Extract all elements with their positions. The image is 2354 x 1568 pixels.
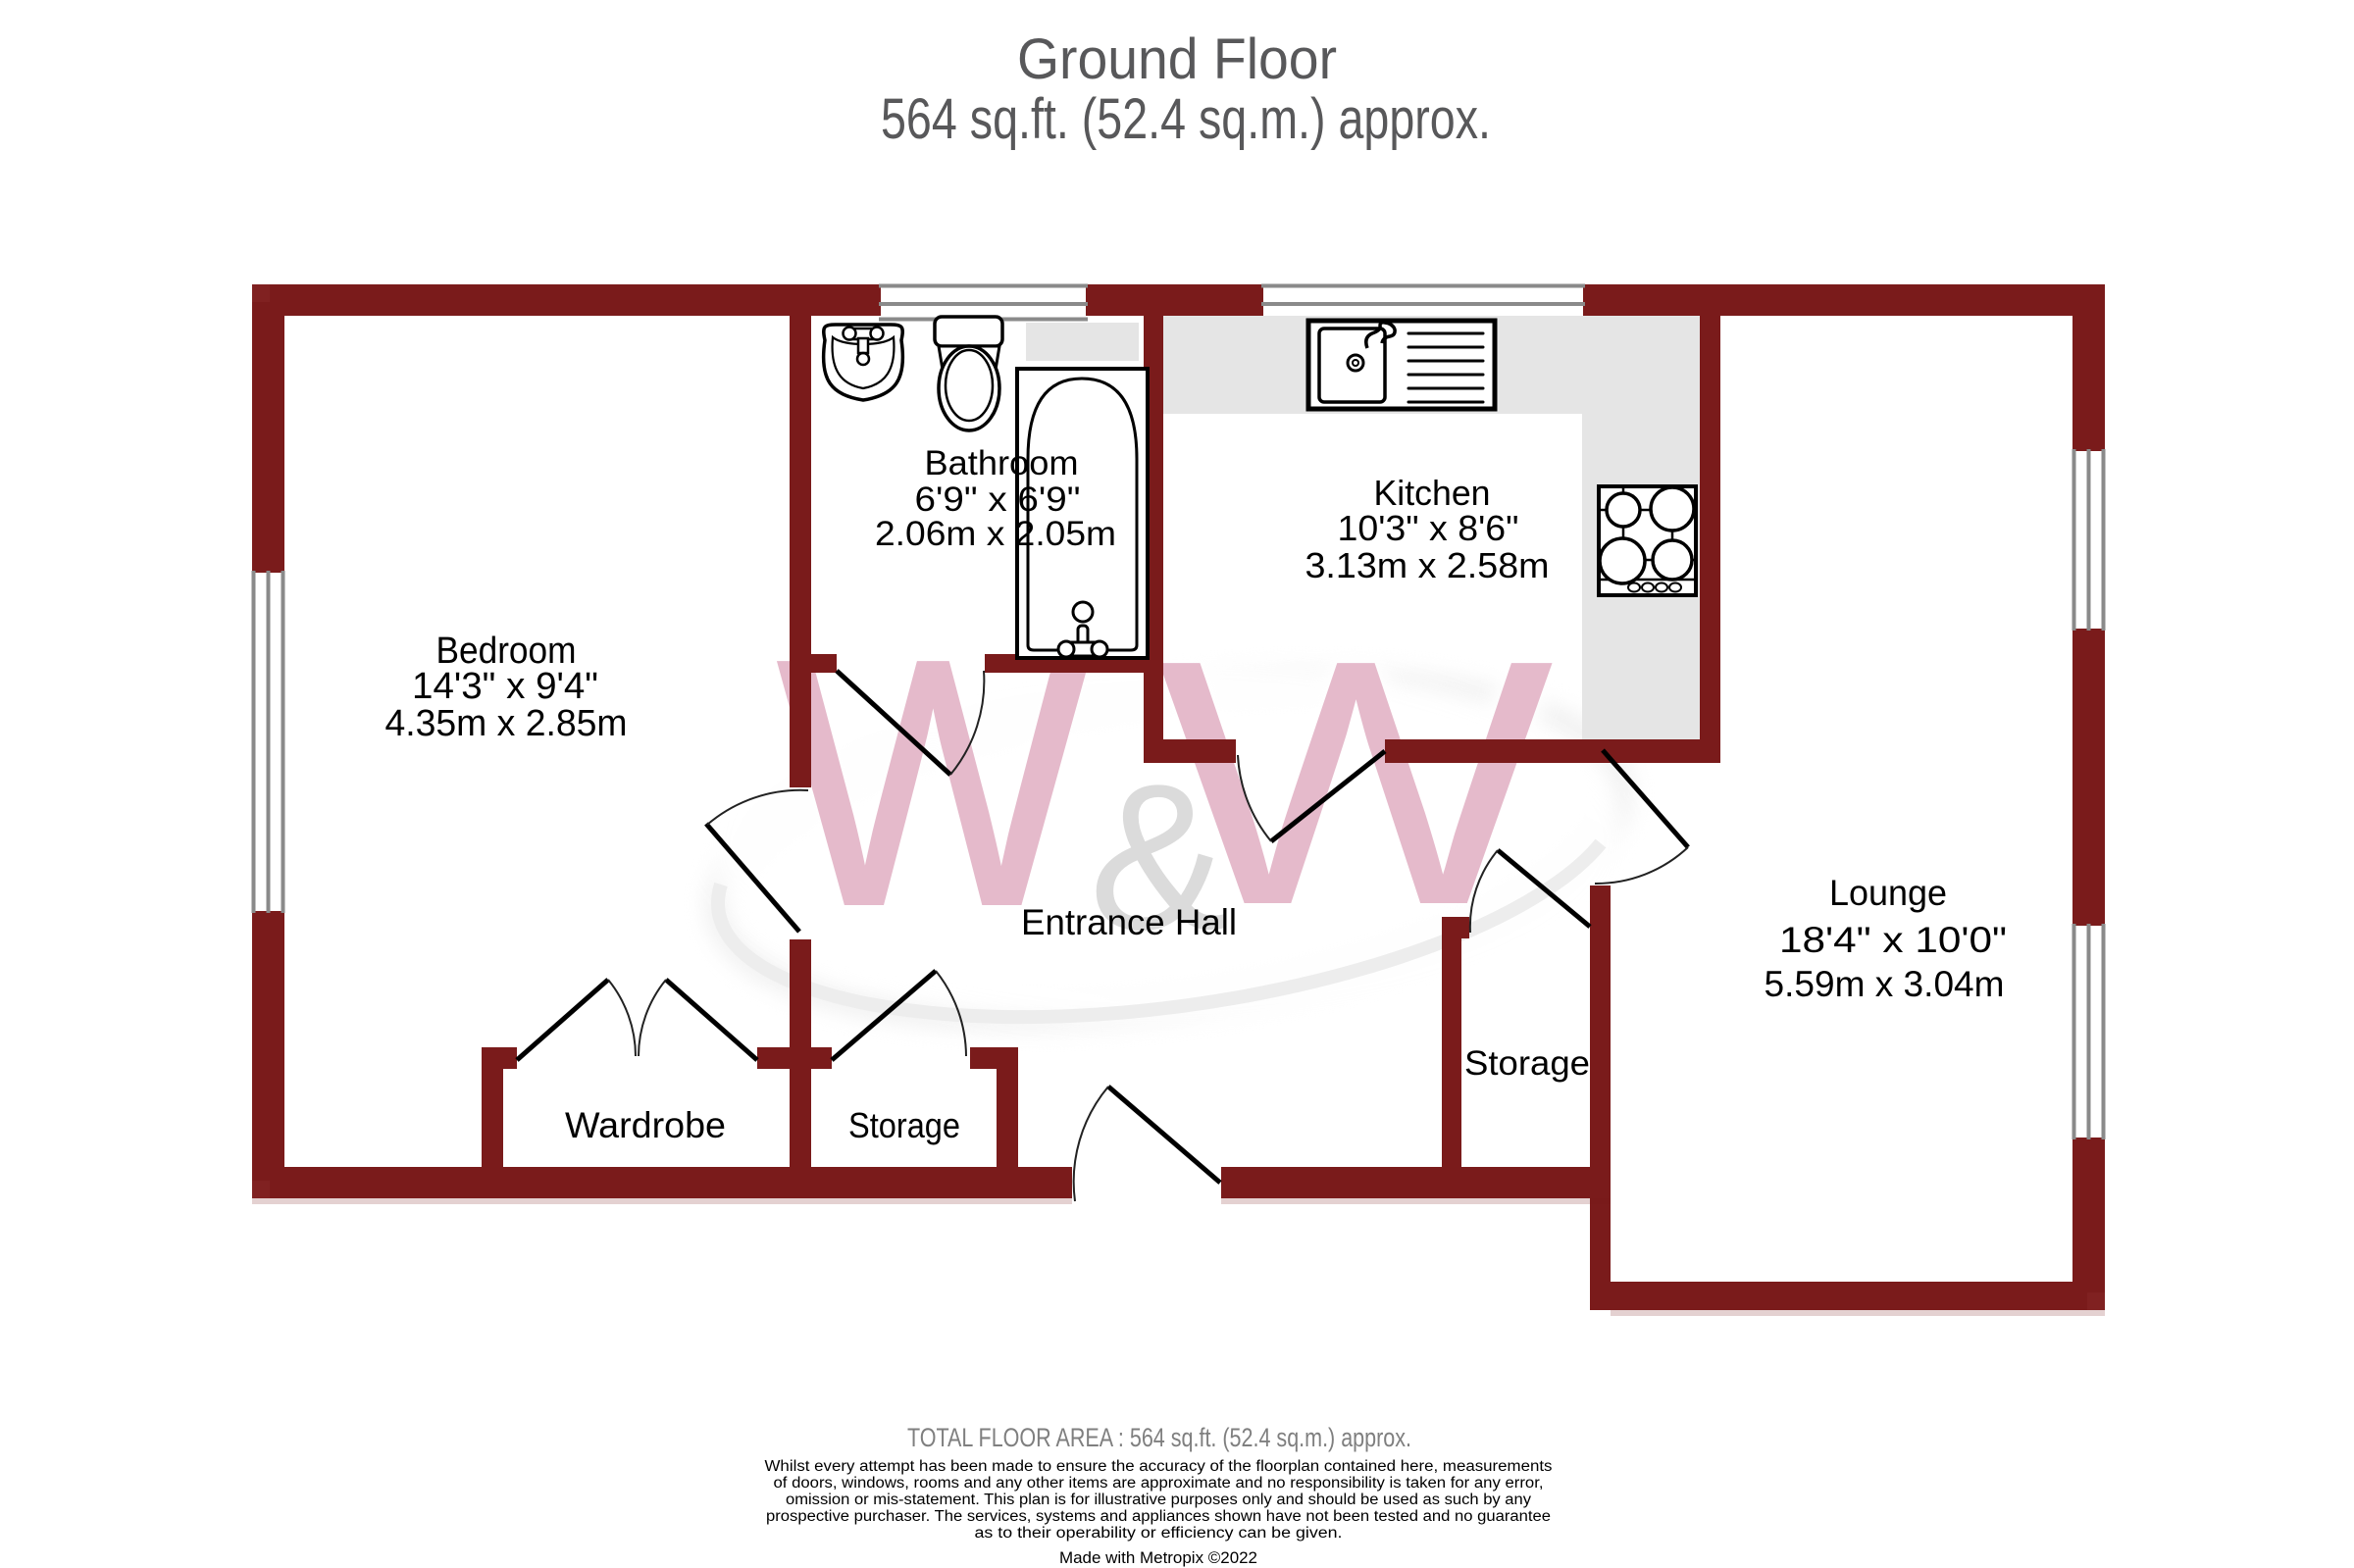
svg-text:prospective purchaser. The ser: prospective purchaser. The services, sys… <box>766 1508 1551 1525</box>
svg-text:of doors, windows, rooms and a: of doors, windows, rooms and any other i… <box>774 1475 1544 1492</box>
svg-text:Wardrobe: Wardrobe <box>565 1105 726 1145</box>
svg-text:Storage: Storage <box>1464 1044 1590 1083</box>
svg-text:Made with Metropix ©2022: Made with Metropix ©2022 <box>1059 1548 1257 1567</box>
svg-text:Entrance Hall: Entrance Hall <box>1021 902 1237 942</box>
svg-text:18'4" x 10'0": 18'4" x 10'0" <box>1779 920 2007 960</box>
svg-text:14'3" x 9'4": 14'3" x 9'4" <box>412 666 598 707</box>
svg-text:Lounge: Lounge <box>1829 873 1947 913</box>
svg-text:10'3" x 8'6": 10'3" x 8'6" <box>1338 508 1519 548</box>
svg-text:5.59m x 3.04m: 5.59m x 3.04m <box>1765 964 2005 1004</box>
svg-text:as to their operability or eff: as to their operability or efficiency ca… <box>975 1525 1343 1542</box>
svg-text:Kitchen: Kitchen <box>1374 473 1491 513</box>
svg-text:6'9" x 6'9": 6'9" x 6'9" <box>915 481 1081 519</box>
svg-text:4.35m x 2.85m: 4.35m x 2.85m <box>385 703 628 744</box>
svg-text:Storage: Storage <box>848 1105 960 1145</box>
svg-text:TOTAL FLOOR AREA : 564 sq.ft.: TOTAL FLOOR AREA : 564 sq.ft. (52.4 sq.m… <box>907 1423 1411 1452</box>
svg-text:564 sq.ft. (52.4 sq.m.) approx: 564 sq.ft. (52.4 sq.m.) approx. <box>881 87 1491 151</box>
svg-text:Bathroom: Bathroom <box>925 444 1079 482</box>
svg-text:Whilst every attempt has been: Whilst every attempt has been made to en… <box>765 1458 1553 1475</box>
svg-text:3.13m x 2.58m: 3.13m x 2.58m <box>1305 545 1550 585</box>
svg-text:omission or mis-statement. Thi: omission or mis-statement. This plan is … <box>786 1492 1531 1508</box>
svg-text:2.06m x 2.05m: 2.06m x 2.05m <box>875 515 1116 553</box>
svg-text:Ground Floor: Ground Floor <box>1017 27 1337 91</box>
